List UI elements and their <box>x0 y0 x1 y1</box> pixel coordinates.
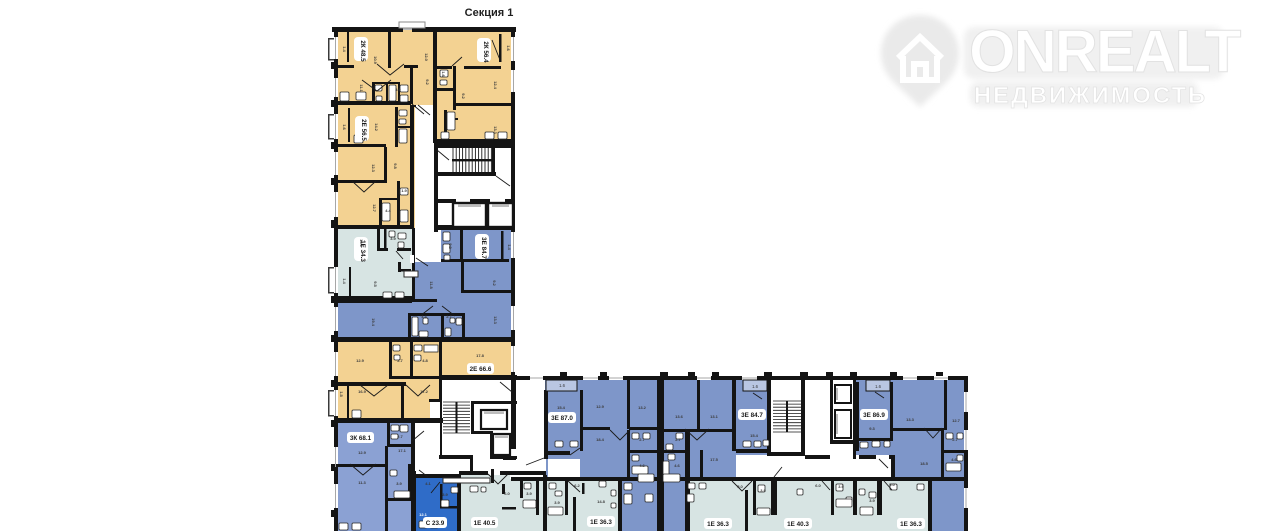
svg-text:17.8: 17.8 <box>476 353 485 358</box>
svg-text:4.1: 4.1 <box>425 481 431 486</box>
svg-text:12.1: 12.1 <box>419 512 428 517</box>
svg-text:1Е 36.3: 1Е 36.3 <box>900 521 922 528</box>
svg-text:19.4: 19.4 <box>371 318 376 327</box>
svg-text:11.8: 11.8 <box>429 281 434 289</box>
svg-text:1.6: 1.6 <box>875 384 881 389</box>
svg-text:13.2: 13.2 <box>638 405 647 410</box>
svg-text:1.6: 1.6 <box>342 124 347 130</box>
svg-text:2.7: 2.7 <box>446 314 452 319</box>
svg-text:1.6: 1.6 <box>506 45 511 51</box>
svg-text:12.3: 12.3 <box>371 164 376 173</box>
svg-text:1.5: 1.5 <box>339 391 344 397</box>
svg-text:12.9: 12.9 <box>596 404 605 409</box>
svg-text:17.1: 17.1 <box>398 448 407 453</box>
svg-text:2Е 66.6: 2Е 66.6 <box>470 366 492 373</box>
svg-text:1Е 40.3: 1Е 40.3 <box>787 521 809 528</box>
svg-text:11.1: 11.1 <box>359 84 364 92</box>
svg-text:3Е 84.7: 3Е 84.7 <box>741 412 763 419</box>
svg-text:15.4: 15.4 <box>750 433 759 438</box>
svg-text:1.6: 1.6 <box>752 384 758 389</box>
svg-text:Секция 1: Секция 1 <box>465 7 514 19</box>
svg-text:12.9: 12.9 <box>358 450 367 455</box>
svg-text:18.4: 18.4 <box>596 437 605 442</box>
svg-text:1.6: 1.6 <box>441 71 446 77</box>
svg-text:9.5: 9.5 <box>373 281 378 287</box>
svg-text:1.6: 1.6 <box>559 383 565 388</box>
svg-text:С 23.9: С 23.9 <box>426 520 445 527</box>
svg-text:3К 68.1: 3К 68.1 <box>350 435 372 442</box>
svg-text:5.0: 5.0 <box>737 484 743 489</box>
svg-text:17.2: 17.2 <box>420 389 429 394</box>
svg-text:1Е 36.3: 1Е 36.3 <box>707 521 729 528</box>
svg-text:9.8: 9.8 <box>448 243 453 249</box>
svg-text:11.3: 11.3 <box>358 480 366 485</box>
svg-text:2Е 56.5: 2Е 56.5 <box>360 119 367 141</box>
svg-text:12.0: 12.0 <box>424 53 429 62</box>
svg-text:2К 56.4: 2К 56.4 <box>482 41 489 63</box>
svg-text:12.7: 12.7 <box>952 418 961 423</box>
svg-text:1.4: 1.4 <box>342 278 347 284</box>
svg-text:6.2: 6.2 <box>574 483 580 488</box>
svg-text:4.8: 4.8 <box>422 358 428 363</box>
svg-text:3.9: 3.9 <box>526 491 532 496</box>
svg-text:6.0: 6.0 <box>815 483 821 488</box>
svg-text:12.7: 12.7 <box>372 204 377 213</box>
svg-text:18.5: 18.5 <box>920 461 929 466</box>
svg-text:13.3: 13.3 <box>906 417 915 422</box>
svg-text:2.7: 2.7 <box>397 434 403 439</box>
svg-text:3.9: 3.9 <box>396 481 402 486</box>
svg-text:4.4: 4.4 <box>385 208 391 213</box>
svg-text:5.0: 5.0 <box>889 482 895 487</box>
svg-text:9.2: 9.2 <box>461 93 466 99</box>
svg-text:13.3: 13.3 <box>493 126 498 135</box>
svg-text:4.6: 4.6 <box>951 457 957 462</box>
svg-text:1.9: 1.9 <box>401 188 407 193</box>
svg-text:1.4: 1.4 <box>342 46 347 52</box>
svg-text:9.3: 9.3 <box>869 426 875 431</box>
svg-text:13.1: 13.1 <box>710 414 719 419</box>
svg-text:14.2: 14.2 <box>374 123 379 132</box>
svg-text:15.4: 15.4 <box>557 405 566 410</box>
svg-text:2К 48.5: 2К 48.5 <box>359 40 366 62</box>
svg-text:НЕДВИЖИМОСТЬ: НЕДВИЖИМОСТЬ <box>974 82 1207 108</box>
svg-text:3Е 84.7: 3Е 84.7 <box>480 237 487 259</box>
svg-text:3.9: 3.9 <box>390 236 396 241</box>
svg-text:3Е 87.0: 3Е 87.0 <box>551 415 573 422</box>
svg-text:2.7: 2.7 <box>675 437 681 442</box>
svg-text:10.9: 10.9 <box>373 56 378 65</box>
svg-text:1Е 40.5: 1Е 40.5 <box>474 520 496 527</box>
svg-text:1.4: 1.4 <box>507 244 512 250</box>
svg-text:14.8: 14.8 <box>597 499 606 504</box>
svg-text:ONREALT: ONREALT <box>969 18 1241 85</box>
svg-text:9.8: 9.8 <box>393 163 398 169</box>
svg-text:16.9: 16.9 <box>358 389 367 394</box>
svg-text:12.9: 12.9 <box>356 358 365 363</box>
svg-text:2.7: 2.7 <box>397 358 403 363</box>
svg-text:4.6: 4.6 <box>639 463 645 468</box>
svg-text:4.6: 4.6 <box>674 463 680 468</box>
svg-text:3.9: 3.9 <box>442 492 448 497</box>
svg-text:2.7: 2.7 <box>639 437 645 442</box>
svg-text:17.5: 17.5 <box>710 457 719 462</box>
svg-text:9.2: 9.2 <box>425 79 430 85</box>
svg-text:3.9: 3.9 <box>869 498 875 503</box>
svg-text:2.7: 2.7 <box>952 437 958 442</box>
svg-text:13.6: 13.6 <box>675 414 684 419</box>
svg-text:3.9: 3.9 <box>760 488 766 493</box>
svg-text:10.1: 10.1 <box>359 239 364 248</box>
svg-text:13.3: 13.3 <box>493 316 498 325</box>
svg-text:12.4: 12.4 <box>493 81 498 90</box>
svg-text:4.4: 4.4 <box>421 314 427 319</box>
svg-text:9.2: 9.2 <box>492 280 497 286</box>
svg-text:3.9: 3.9 <box>838 484 844 489</box>
svg-text:1Е 36.3: 1Е 36.3 <box>590 519 612 526</box>
svg-text:3.9: 3.9 <box>554 500 560 505</box>
svg-text:3.9: 3.9 <box>395 87 401 92</box>
svg-text:6.0: 6.0 <box>504 491 510 496</box>
svg-text:3Е 86.9: 3Е 86.9 <box>863 412 885 419</box>
